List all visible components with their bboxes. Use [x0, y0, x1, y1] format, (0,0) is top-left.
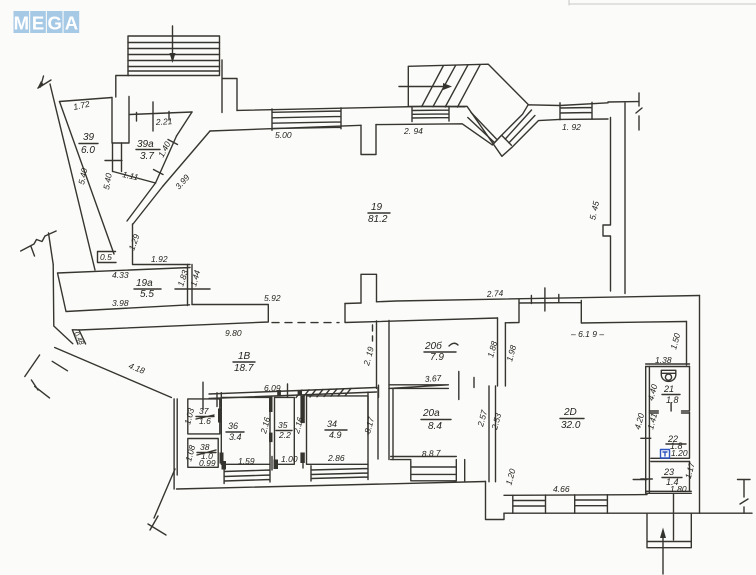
svg-text:1.92: 1.92 [151, 254, 168, 264]
svg-text:35: 35 [278, 420, 288, 430]
svg-text:M: M [14, 13, 29, 34]
svg-text:G: G [48, 13, 62, 34]
svg-text:1.38: 1.38 [655, 355, 672, 365]
svg-text:1.03: 1.03 [182, 407, 196, 426]
svg-text:23: 23 [663, 467, 674, 477]
svg-text:2. 94: 2. 94 [403, 126, 423, 136]
svg-text:5. 45: 5. 45 [587, 200, 601, 221]
svg-text:2.2: 2.2 [278, 430, 291, 440]
svg-text:1.00: 1.00 [281, 454, 298, 464]
svg-text:18.7: 18.7 [234, 363, 254, 374]
svg-text:5.00: 5.00 [275, 130, 292, 140]
svg-text:4.18: 4.18 [127, 361, 146, 376]
svg-text:1B: 1B [238, 351, 251, 362]
svg-text:1.41: 1.41 [645, 412, 659, 431]
svg-text:2.57: 2.57 [475, 409, 489, 429]
svg-text:1.08: 1.08 [183, 444, 197, 463]
svg-text:1.98: 1.98 [504, 344, 518, 363]
svg-text:0.48: 0.48 [72, 331, 84, 346]
svg-text:5.40: 5.40 [76, 167, 89, 186]
svg-text:81.2: 81.2 [368, 214, 388, 225]
svg-text:39a: 39a [137, 139, 154, 150]
svg-text:5.92: 5.92 [264, 293, 281, 303]
svg-text:4.66: 4.66 [553, 484, 570, 494]
svg-text:2.86: 2.86 [327, 453, 345, 463]
svg-text:1.8: 1.8 [666, 395, 679, 405]
svg-text:4.33: 4.33 [112, 270, 129, 280]
svg-text:2.16: 2.16 [291, 416, 305, 436]
svg-text:1.29: 1.29 [126, 232, 141, 251]
svg-text:3.67: 3.67 [424, 373, 441, 384]
svg-text:36: 36 [228, 421, 238, 431]
svg-text:– 6.1 9 –: – 6.1 9 – [570, 329, 604, 339]
svg-text:1.80: 1.80 [670, 484, 687, 494]
svg-text:1.17: 1.17 [683, 461, 697, 480]
svg-text:20a: 20a [422, 408, 440, 419]
svg-text:8.17: 8.17 [362, 416, 376, 435]
svg-text:4.40: 4.40 [645, 383, 659, 402]
svg-text:2. 19: 2. 19 [361, 345, 376, 367]
svg-text:2.53: 2.53 [489, 412, 503, 432]
svg-text:2.74: 2.74 [485, 288, 503, 299]
svg-text:3.7: 3.7 [140, 151, 154, 162]
svg-text:1. 92: 1. 92 [562, 122, 581, 132]
svg-text:4.9: 4.9 [329, 430, 342, 440]
svg-text:34: 34 [327, 419, 337, 429]
svg-text:5.40: 5.40 [101, 172, 114, 190]
svg-text:8.4: 8.4 [428, 421, 442, 432]
svg-text:19: 19 [371, 202, 383, 213]
svg-text:1.20: 1.20 [671, 448, 688, 458]
svg-text:4.20: 4.20 [632, 412, 646, 431]
svg-text:32.0: 32.0 [561, 420, 581, 431]
svg-text:0.99: 0.99 [199, 458, 216, 468]
svg-text:2D: 2D [563, 407, 577, 418]
svg-text:6.0: 6.0 [81, 145, 95, 156]
svg-text:19a: 19a [136, 278, 153, 289]
svg-text:A: A [65, 13, 78, 34]
svg-text:1.72: 1.72 [72, 99, 91, 112]
svg-text:2.21: 2.21 [155, 116, 173, 127]
svg-text:20б: 20б [424, 340, 442, 352]
svg-text:5.5: 5.5 [140, 289, 154, 300]
svg-text:1.44: 1.44 [188, 269, 202, 288]
svg-text:1.50: 1.50 [668, 332, 682, 351]
svg-text:39: 39 [83, 132, 95, 143]
svg-text:21: 21 [663, 384, 674, 394]
svg-text:9.80: 9.80 [225, 328, 242, 338]
svg-text:3.98: 3.98 [112, 298, 129, 308]
svg-text:1.11: 1.11 [122, 169, 140, 182]
svg-text:37: 37 [199, 406, 209, 416]
svg-text:0.5: 0.5 [100, 252, 112, 262]
svg-text:E: E [32, 13, 44, 34]
svg-text:1.59: 1.59 [238, 456, 255, 466]
svg-text:3.99: 3.99 [173, 172, 192, 191]
svg-text:3.4: 3.4 [229, 432, 242, 442]
svg-text:1.20: 1.20 [504, 467, 518, 486]
svg-text:8.8 7: 8.8 7 [421, 448, 441, 459]
svg-text:7.9: 7.9 [430, 352, 444, 363]
